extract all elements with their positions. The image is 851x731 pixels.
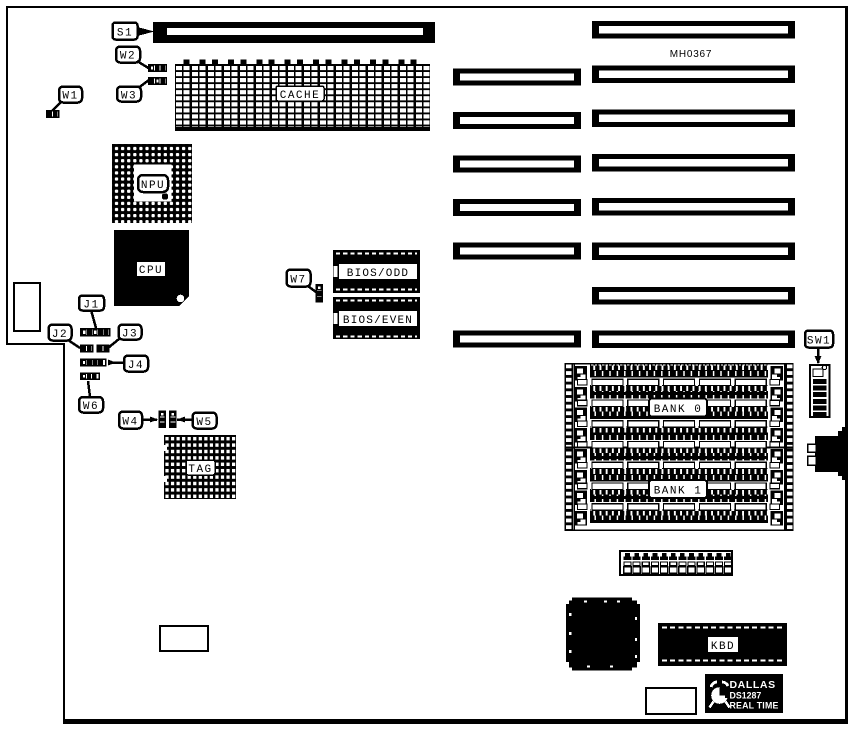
svg-text:DS1287: DS1287 <box>730 691 762 701</box>
svg-text:BANK 1: BANK 1 <box>654 486 703 498</box>
svg-text:W4: W4 <box>122 417 138 429</box>
svg-text:TAG: TAG <box>188 464 212 476</box>
svg-text:W3: W3 <box>121 91 137 103</box>
svg-text:S1: S1 <box>117 28 133 40</box>
svg-text:J4: J4 <box>128 360 144 372</box>
svg-text:W6: W6 <box>83 401 99 413</box>
svg-text:KBD: KBD <box>711 641 735 653</box>
svg-text:W1: W1 <box>62 91 78 103</box>
svg-text:W2: W2 <box>120 51 136 63</box>
svg-text:CACHE: CACHE <box>280 90 321 102</box>
svg-text:W5: W5 <box>196 417 212 429</box>
svg-text:MH0367: MH0367 <box>670 49 713 60</box>
svg-text:W7: W7 <box>290 275 306 287</box>
svg-text:BIOS/ODD: BIOS/ODD <box>347 268 409 280</box>
svg-text:CPU: CPU <box>139 265 163 277</box>
svg-text:BANK 0: BANK 0 <box>654 404 703 416</box>
svg-text:J3: J3 <box>122 329 138 341</box>
svg-text:J1: J1 <box>83 300 99 312</box>
svg-text:BIOS/EVEN: BIOS/EVEN <box>343 315 413 327</box>
svg-text:DALLAS: DALLAS <box>730 679 776 691</box>
svg-text:SW1: SW1 <box>807 336 831 348</box>
svg-text:REAL TIME: REAL TIME <box>730 701 779 711</box>
svg-text:J2: J2 <box>52 329 68 341</box>
svg-text:NPU: NPU <box>141 180 165 192</box>
